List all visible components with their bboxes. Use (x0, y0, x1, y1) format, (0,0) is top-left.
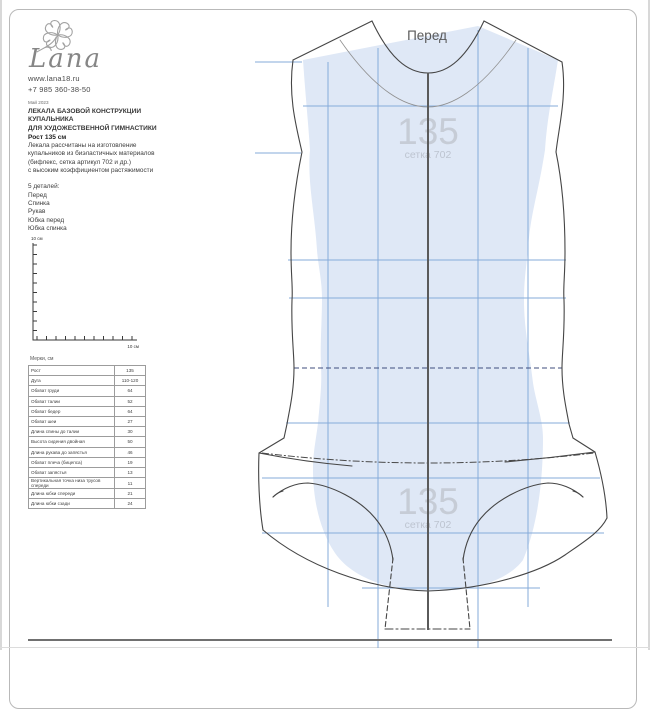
ruler-vertical-label: 10 см (31, 236, 43, 241)
scale-ruler (33, 243, 137, 340)
ruler-horizontal-label: 10 см (127, 344, 139, 349)
pattern-drawing: 10 см 10 см 135 сетка 702 135 сетка 702 (0, 0, 650, 650)
piece-title: Перед (407, 28, 447, 43)
pattern-sheet-page: Lana www.lana18.ru +7 985 360-38-50 Май … (0, 0, 650, 650)
